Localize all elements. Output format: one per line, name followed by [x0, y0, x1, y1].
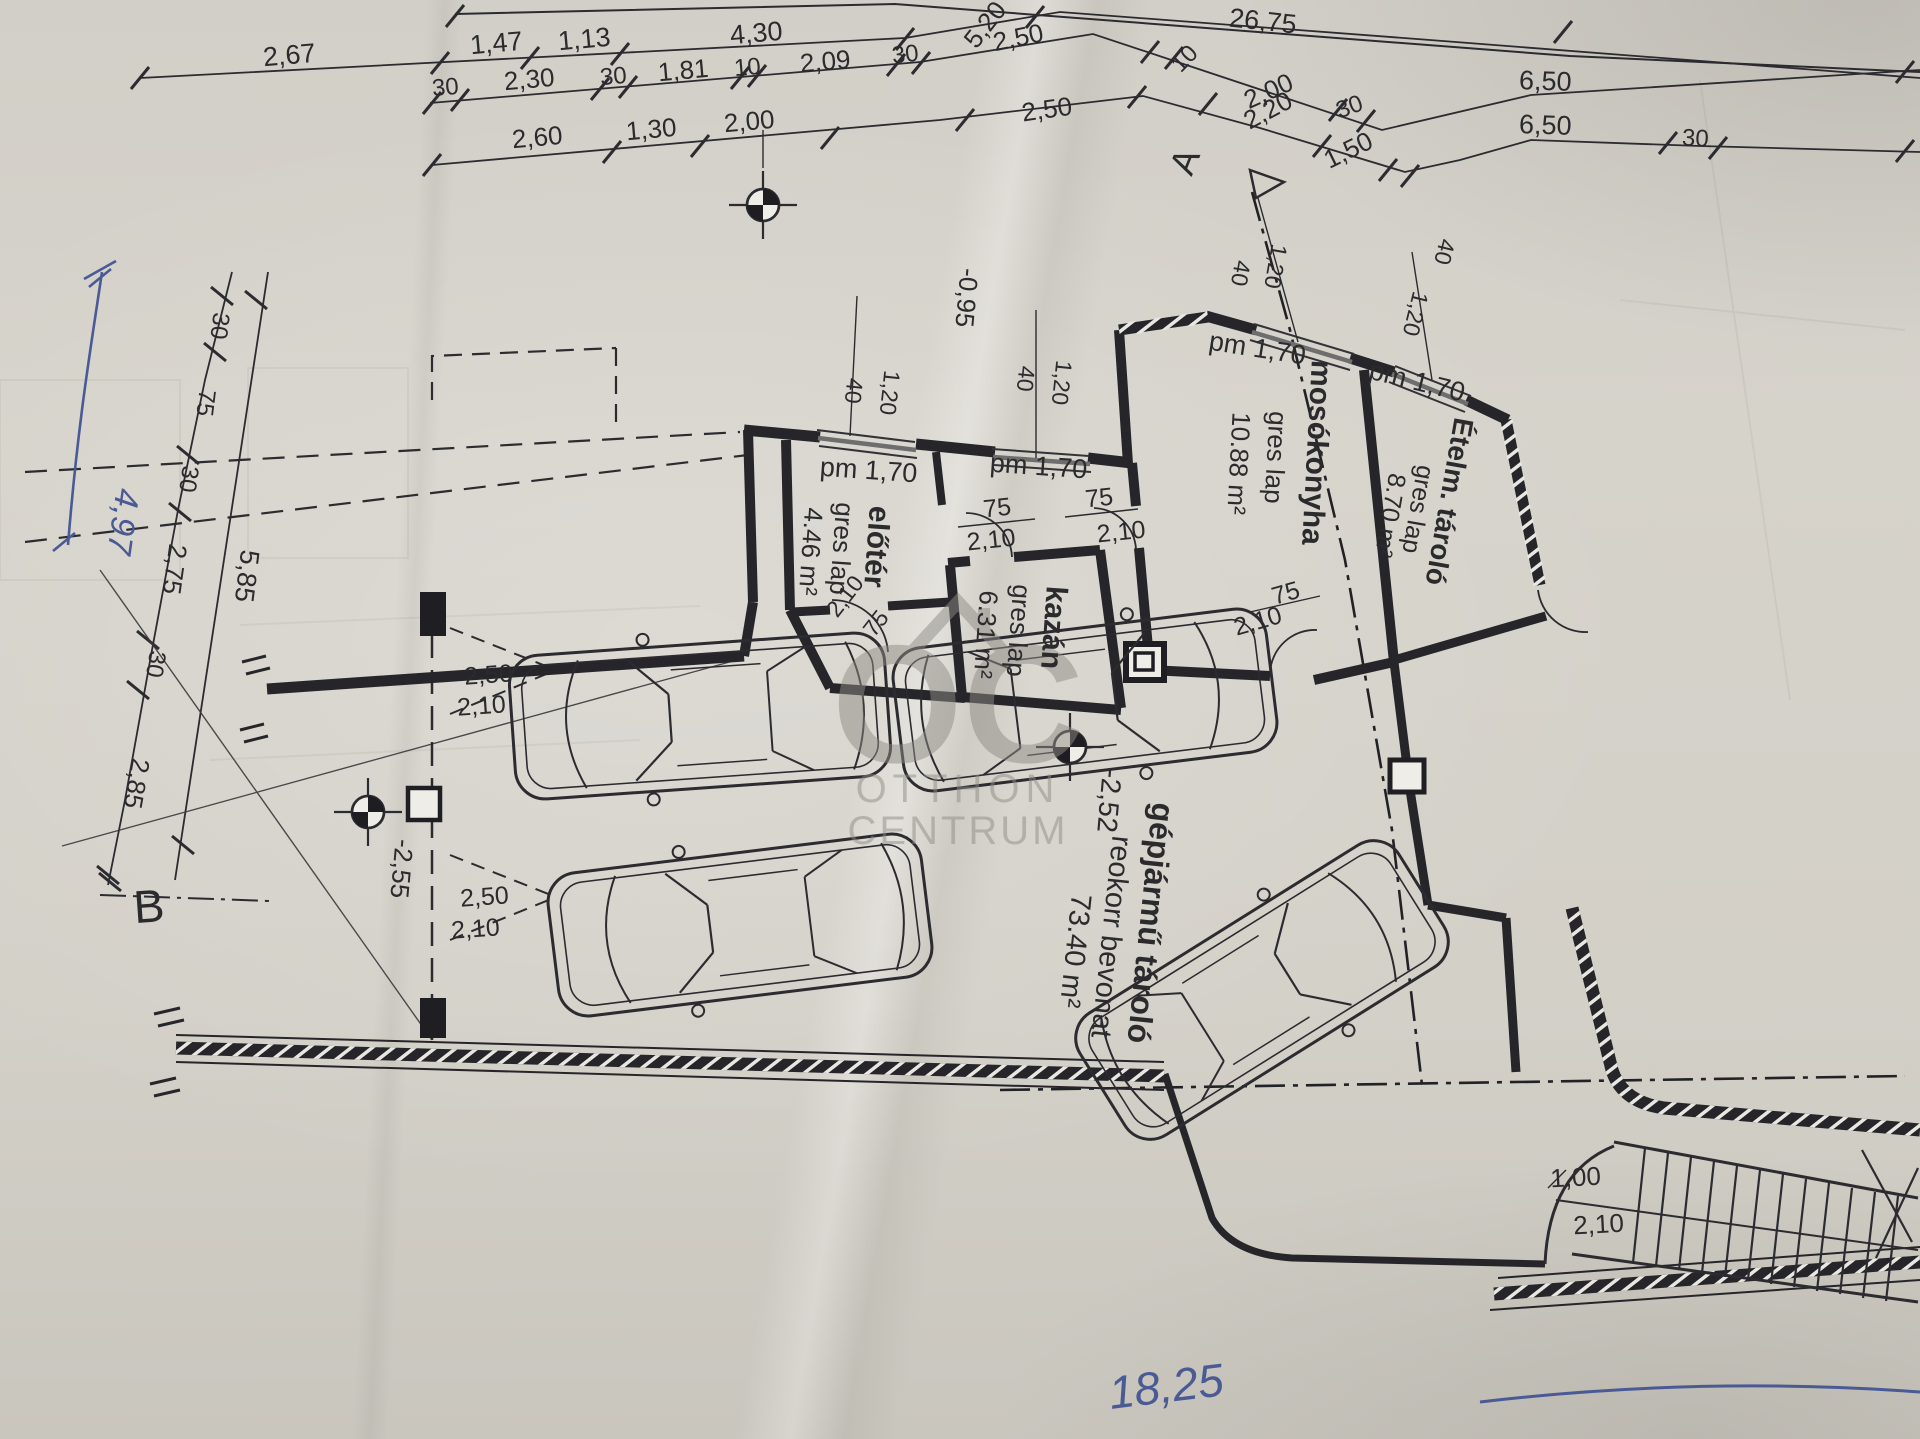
label-pm-1-70: pm 1,70 [989, 448, 1088, 485]
label-10: 10 [733, 53, 762, 82]
label-1-50: 1,50 [1319, 125, 1378, 174]
label--0-95: -0,95 [949, 267, 984, 329]
label-a: A [1161, 143, 1208, 181]
label-2-60: 2,60 [511, 120, 564, 154]
label-4-46-m-: 4.46 m² [793, 507, 829, 597]
label-1-20: 1,20 [1259, 242, 1292, 291]
label-1-20: 1,20 [1047, 359, 1078, 406]
label-40: 40 [1429, 236, 1460, 267]
label-2-50: 2,50 [463, 659, 514, 690]
label-40: 40 [840, 377, 869, 405]
label-10: 10 [1166, 40, 1204, 78]
watermark-name-1: OTTHON [856, 767, 1061, 811]
floorplan-photo: OC OTTHON CENTRUM 2,671,471,134,305,2026… [0, 0, 1920, 1439]
label-18-25: 18,25 [1106, 1353, 1227, 1419]
label-pm-1-70: pm 1,70 [1207, 326, 1308, 371]
label-10-88-m-: 10.88 m² [1221, 411, 1256, 515]
label--2-55: -2,55 [384, 838, 419, 900]
label-2-75: 2,75 [157, 542, 194, 596]
label-26-75: 26,75 [1228, 3, 1298, 40]
label-mos-konyha: mosókonyha [1295, 359, 1338, 546]
label-2-10: 2,10 [965, 524, 1016, 557]
label-1-30: 1,30 [625, 112, 678, 146]
label-1-00: 1,00 [1549, 1161, 1601, 1194]
label-4-97: 4,97 [99, 486, 146, 558]
label-4-30: 4,30 [729, 16, 784, 50]
label-2-10: 2,10 [1095, 516, 1146, 549]
label-30: 30 [1681, 124, 1709, 152]
label-gres-lap: gres lap [1259, 410, 1294, 504]
label-30: 30 [891, 40, 920, 70]
label-6-50: 6,50 [1519, 109, 1573, 141]
elevation-marker [729, 171, 797, 239]
floorplan-drawing: OC OTTHON CENTRUM 2,671,471,134,305,2026… [0, 0, 1920, 1439]
label-pm-1-70: pm 1,70 [1366, 355, 1468, 408]
label-2-10: 2,10 [456, 690, 507, 721]
label-2-67: 2,67 [262, 38, 317, 72]
label-6-50: 6,50 [1519, 65, 1573, 97]
label-30: 30 [599, 62, 628, 91]
door-arc-garage [1270, 630, 1317, 673]
label-2-85: 2,85 [118, 756, 156, 811]
label-2-50: 2,50 [459, 881, 510, 912]
label-30: 30 [204, 311, 234, 341]
label-1-81: 1,81 [657, 53, 710, 87]
label-1-20: 1,20 [1398, 289, 1434, 339]
label-b: B [132, 879, 166, 933]
label-2-09: 2,09 [799, 44, 852, 78]
label--2-52: -2,52 [1091, 768, 1127, 834]
label-75: 75 [1084, 483, 1115, 514]
label-el-t-r: előtér [857, 505, 896, 589]
label-5-85: 5,85 [229, 548, 265, 604]
label-30: 30 [173, 464, 203, 494]
label-75: 75 [190, 388, 220, 418]
label-pm-1-70: pm 1,70 [819, 452, 918, 489]
construction-lines [62, 570, 744, 1040]
dashed-projection-lines [25, 348, 748, 1040]
label-2-10: 2,10 [450, 913, 501, 944]
door-arc-storage [1538, 590, 1588, 632]
watermark-name-2: CENTRUM [848, 809, 1069, 853]
label-2-30: 2,30 [503, 62, 556, 96]
label-30: 30 [1332, 90, 1366, 125]
label-40: 40 [1226, 259, 1256, 289]
label-2-10: 2,10 [1231, 601, 1286, 641]
label-75: 75 [982, 493, 1013, 524]
label-gres-lap: gres lap [1001, 583, 1037, 677]
label-1-47: 1,47 [469, 26, 524, 60]
elevation-marker [334, 778, 402, 846]
label-40: 40 [1012, 365, 1041, 393]
label-1-13: 1,13 [557, 22, 612, 56]
flue-symbol [1390, 760, 1424, 792]
label-2-00: 2,00 [723, 104, 776, 138]
label-30: 30 [431, 73, 460, 102]
label-2-50: 2,50 [1020, 91, 1074, 128]
label-2-10: 2,10 [1572, 1208, 1624, 1241]
label-kaz-n: kazán [1034, 585, 1073, 670]
column-symbol [408, 788, 440, 820]
label-1-20: 1,20 [875, 369, 906, 416]
label-30: 30 [140, 649, 171, 680]
label-6-31-m-: 6.31 m² [968, 590, 1004, 680]
